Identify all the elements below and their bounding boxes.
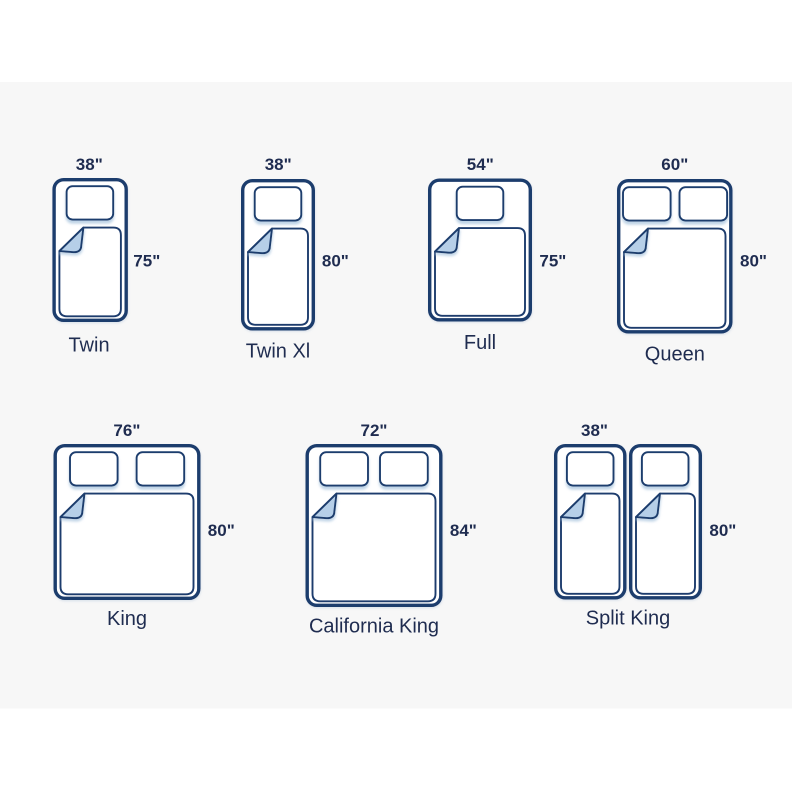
svg-text:Full: Full	[464, 332, 496, 354]
svg-text:75": 75"	[133, 252, 160, 271]
svg-text:54": 54"	[467, 155, 494, 174]
svg-text:Split King: Split King	[586, 608, 671, 630]
svg-text:76": 76"	[113, 421, 140, 440]
svg-text:38": 38"	[76, 155, 103, 174]
svg-text:84": 84"	[450, 521, 477, 540]
svg-text:72": 72"	[361, 421, 388, 440]
svg-text:80": 80"	[322, 252, 349, 271]
svg-text:California King: California King	[309, 616, 439, 638]
svg-text:80": 80"	[740, 252, 767, 271]
svg-text:80": 80"	[709, 521, 736, 540]
svg-text:38": 38"	[581, 421, 608, 440]
svg-text:Queen: Queen	[645, 344, 705, 366]
svg-text:Twin Xl: Twin Xl	[246, 341, 310, 363]
svg-text:King: King	[107, 608, 147, 630]
svg-text:Twin: Twin	[68, 335, 109, 357]
svg-text:80": 80"	[208, 521, 235, 540]
svg-text:75": 75"	[539, 252, 566, 271]
svg-text:38": 38"	[265, 155, 292, 174]
svg-text:60": 60"	[661, 155, 688, 174]
